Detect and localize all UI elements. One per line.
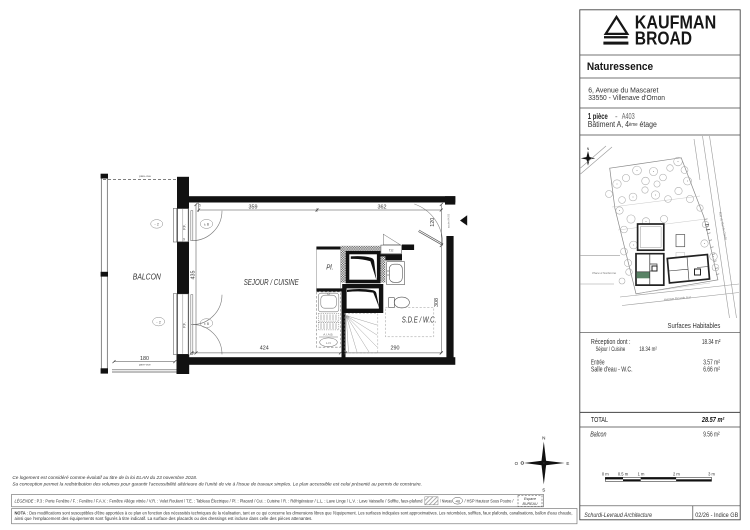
- svg-text:- 2: - 2: [154, 222, 159, 227]
- svg-text:9.56 m²: 9.56 m²: [703, 432, 720, 439]
- svg-text:3 m: 3 m: [708, 471, 715, 476]
- svg-text:± B: ± B: [204, 322, 210, 326]
- svg-text:Salle d'eau - W.C.: Salle d'eau - W.C.: [591, 366, 633, 373]
- svg-text:Bâtiment A, 4ème étage: Bâtiment A, 4ème étage: [588, 120, 657, 129]
- svg-text:Balcon: Balcon: [590, 432, 606, 439]
- svg-text:TOTAL: TOTAL: [591, 415, 608, 424]
- svg-text:S.D.E / W.C.: S.D.E / W.C.: [402, 315, 437, 325]
- svg-text:Pl.: Pl.: [326, 263, 333, 272]
- svg-text:Sa conception permet la redist: Sa conception permet la redistribution d…: [12, 482, 422, 487]
- svg-text:BROAD: BROAD: [635, 29, 692, 49]
- svg-text:P.F.: P.F.: [183, 224, 187, 229]
- svg-text:33550 - Villenave d'Ornon: 33550 - Villenave d'Ornon: [588, 93, 665, 102]
- svg-text:N: N: [542, 436, 545, 441]
- svg-text:5: 5: [192, 351, 194, 355]
- svg-text:290: 290: [391, 345, 400, 351]
- svg-text:Schurdi-Levraud Architecture: Schurdi-Levraud Architecture: [584, 512, 652, 519]
- svg-text:Séjour / Cuisine: Séjour / Cuisine: [596, 346, 626, 353]
- svg-text:28.57 m²: 28.57 m²: [701, 415, 725, 424]
- svg-text:pare-vue: pare-vue: [139, 174, 151, 178]
- svg-text:+B: +B: [455, 499, 460, 503]
- svg-text:2 m: 2 m: [673, 471, 680, 476]
- svg-text:9: 9: [183, 238, 185, 242]
- svg-text:18.34 m²: 18.34 m²: [702, 339, 721, 346]
- svg-text:ainsi que l'emplacement des éq: ainsi que l'emplacement des équipements …: [15, 516, 313, 521]
- svg-text:LÉGENDE : P.3 : Porte Fenêtre: LÉGENDE : P.3 : Porte Fenêtre / F. : Fen…: [15, 499, 424, 504]
- svg-text:Surfaces Habitables: Surfaces Habitables: [668, 321, 721, 330]
- svg-text:BALCON: BALCON: [133, 271, 162, 281]
- svg-text:accès A4.03: accès A4.03: [446, 213, 450, 228]
- svg-text:/ Niveau: / Niveau: [440, 499, 453, 504]
- svg-text:P.F.: P.F.: [183, 322, 187, 327]
- svg-text:± B: ± B: [204, 223, 210, 227]
- svg-text:O: O: [515, 461, 519, 466]
- svg-text:180: 180: [140, 356, 149, 362]
- svg-text:E: E: [566, 461, 569, 466]
- svg-text:0 m: 0 m: [602, 471, 609, 476]
- svg-text:BUREAU: BUREAU: [523, 502, 538, 506]
- svg-text:359: 359: [249, 205, 258, 211]
- svg-text:308: 308: [434, 298, 440, 307]
- svg-text:Espace: Espace: [524, 497, 536, 501]
- svg-text:NOTA : Des modifications sont: NOTA : Des modifications sont susceptibl…: [15, 510, 573, 515]
- svg-text:1 m: 1 m: [638, 471, 645, 476]
- svg-text:362: 362: [378, 205, 387, 211]
- svg-text:02/26 - Indice GB: 02/26 - Indice GB: [695, 512, 738, 519]
- svg-text:pare-vue: pare-vue: [139, 362, 151, 366]
- svg-text:18.34 m²: 18.34 m²: [639, 346, 657, 353]
- svg-text:/ HSP Hauteur Sous Poutre /: / HSP Hauteur Sous Poutre /: [465, 499, 515, 504]
- svg-text:T.E: T.E: [389, 248, 395, 252]
- svg-text:435: 435: [191, 271, 197, 280]
- svg-text:Ce logement est considéré comm: Ce logement est considéré comme évolutif…: [12, 475, 197, 480]
- svg-text:424: 424: [260, 345, 269, 351]
- svg-text:- 2: - 2: [156, 319, 161, 324]
- svg-text:5: 5: [199, 204, 201, 208]
- svg-text:S: S: [542, 488, 545, 493]
- svg-text:A.I.A.B.: A.I.A.B.: [323, 332, 333, 336]
- svg-text:SEJOUR / CUISINE: SEJOUR / CUISINE: [244, 277, 299, 287]
- svg-text:Place d.Narbonne: Place d.Narbonne: [592, 271, 616, 275]
- svg-text:Naturessence: Naturessence: [587, 61, 653, 73]
- svg-text:6.66 m²: 6.66 m²: [703, 366, 720, 373]
- svg-text:L.N: L.N: [326, 341, 331, 345]
- svg-text:0.5 m: 0.5 m: [618, 471, 629, 476]
- svg-text:120: 120: [430, 218, 436, 227]
